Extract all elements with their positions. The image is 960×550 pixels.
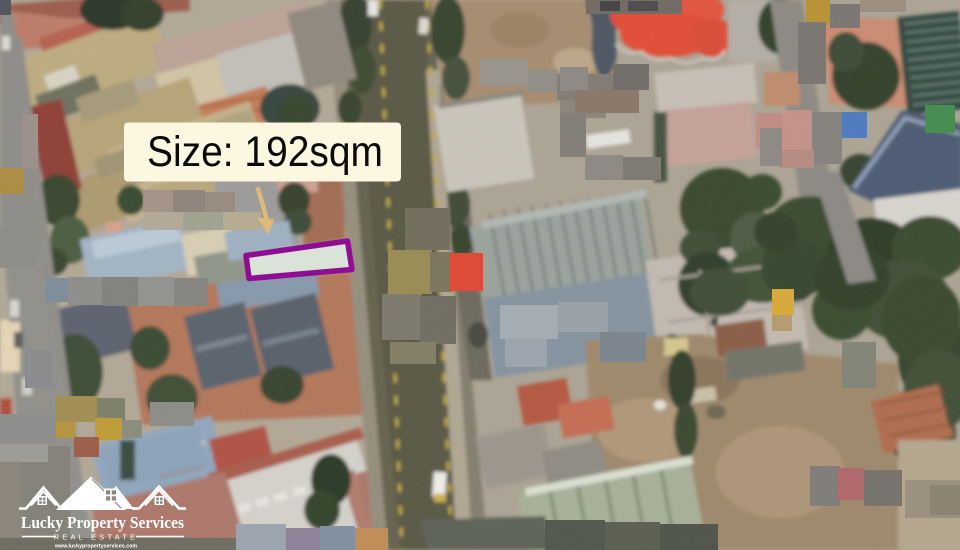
svg-text:www.luckypropertyservices.com: www.luckypropertyservices.com xyxy=(54,544,138,550)
svg-text:Lucky Property Services: Lucky Property Services xyxy=(21,513,184,532)
svg-text:REAL ESTATE: REAL ESTATE xyxy=(54,533,139,542)
svg-text:Size: 192sqm: Size: 192sqm xyxy=(147,129,383,176)
